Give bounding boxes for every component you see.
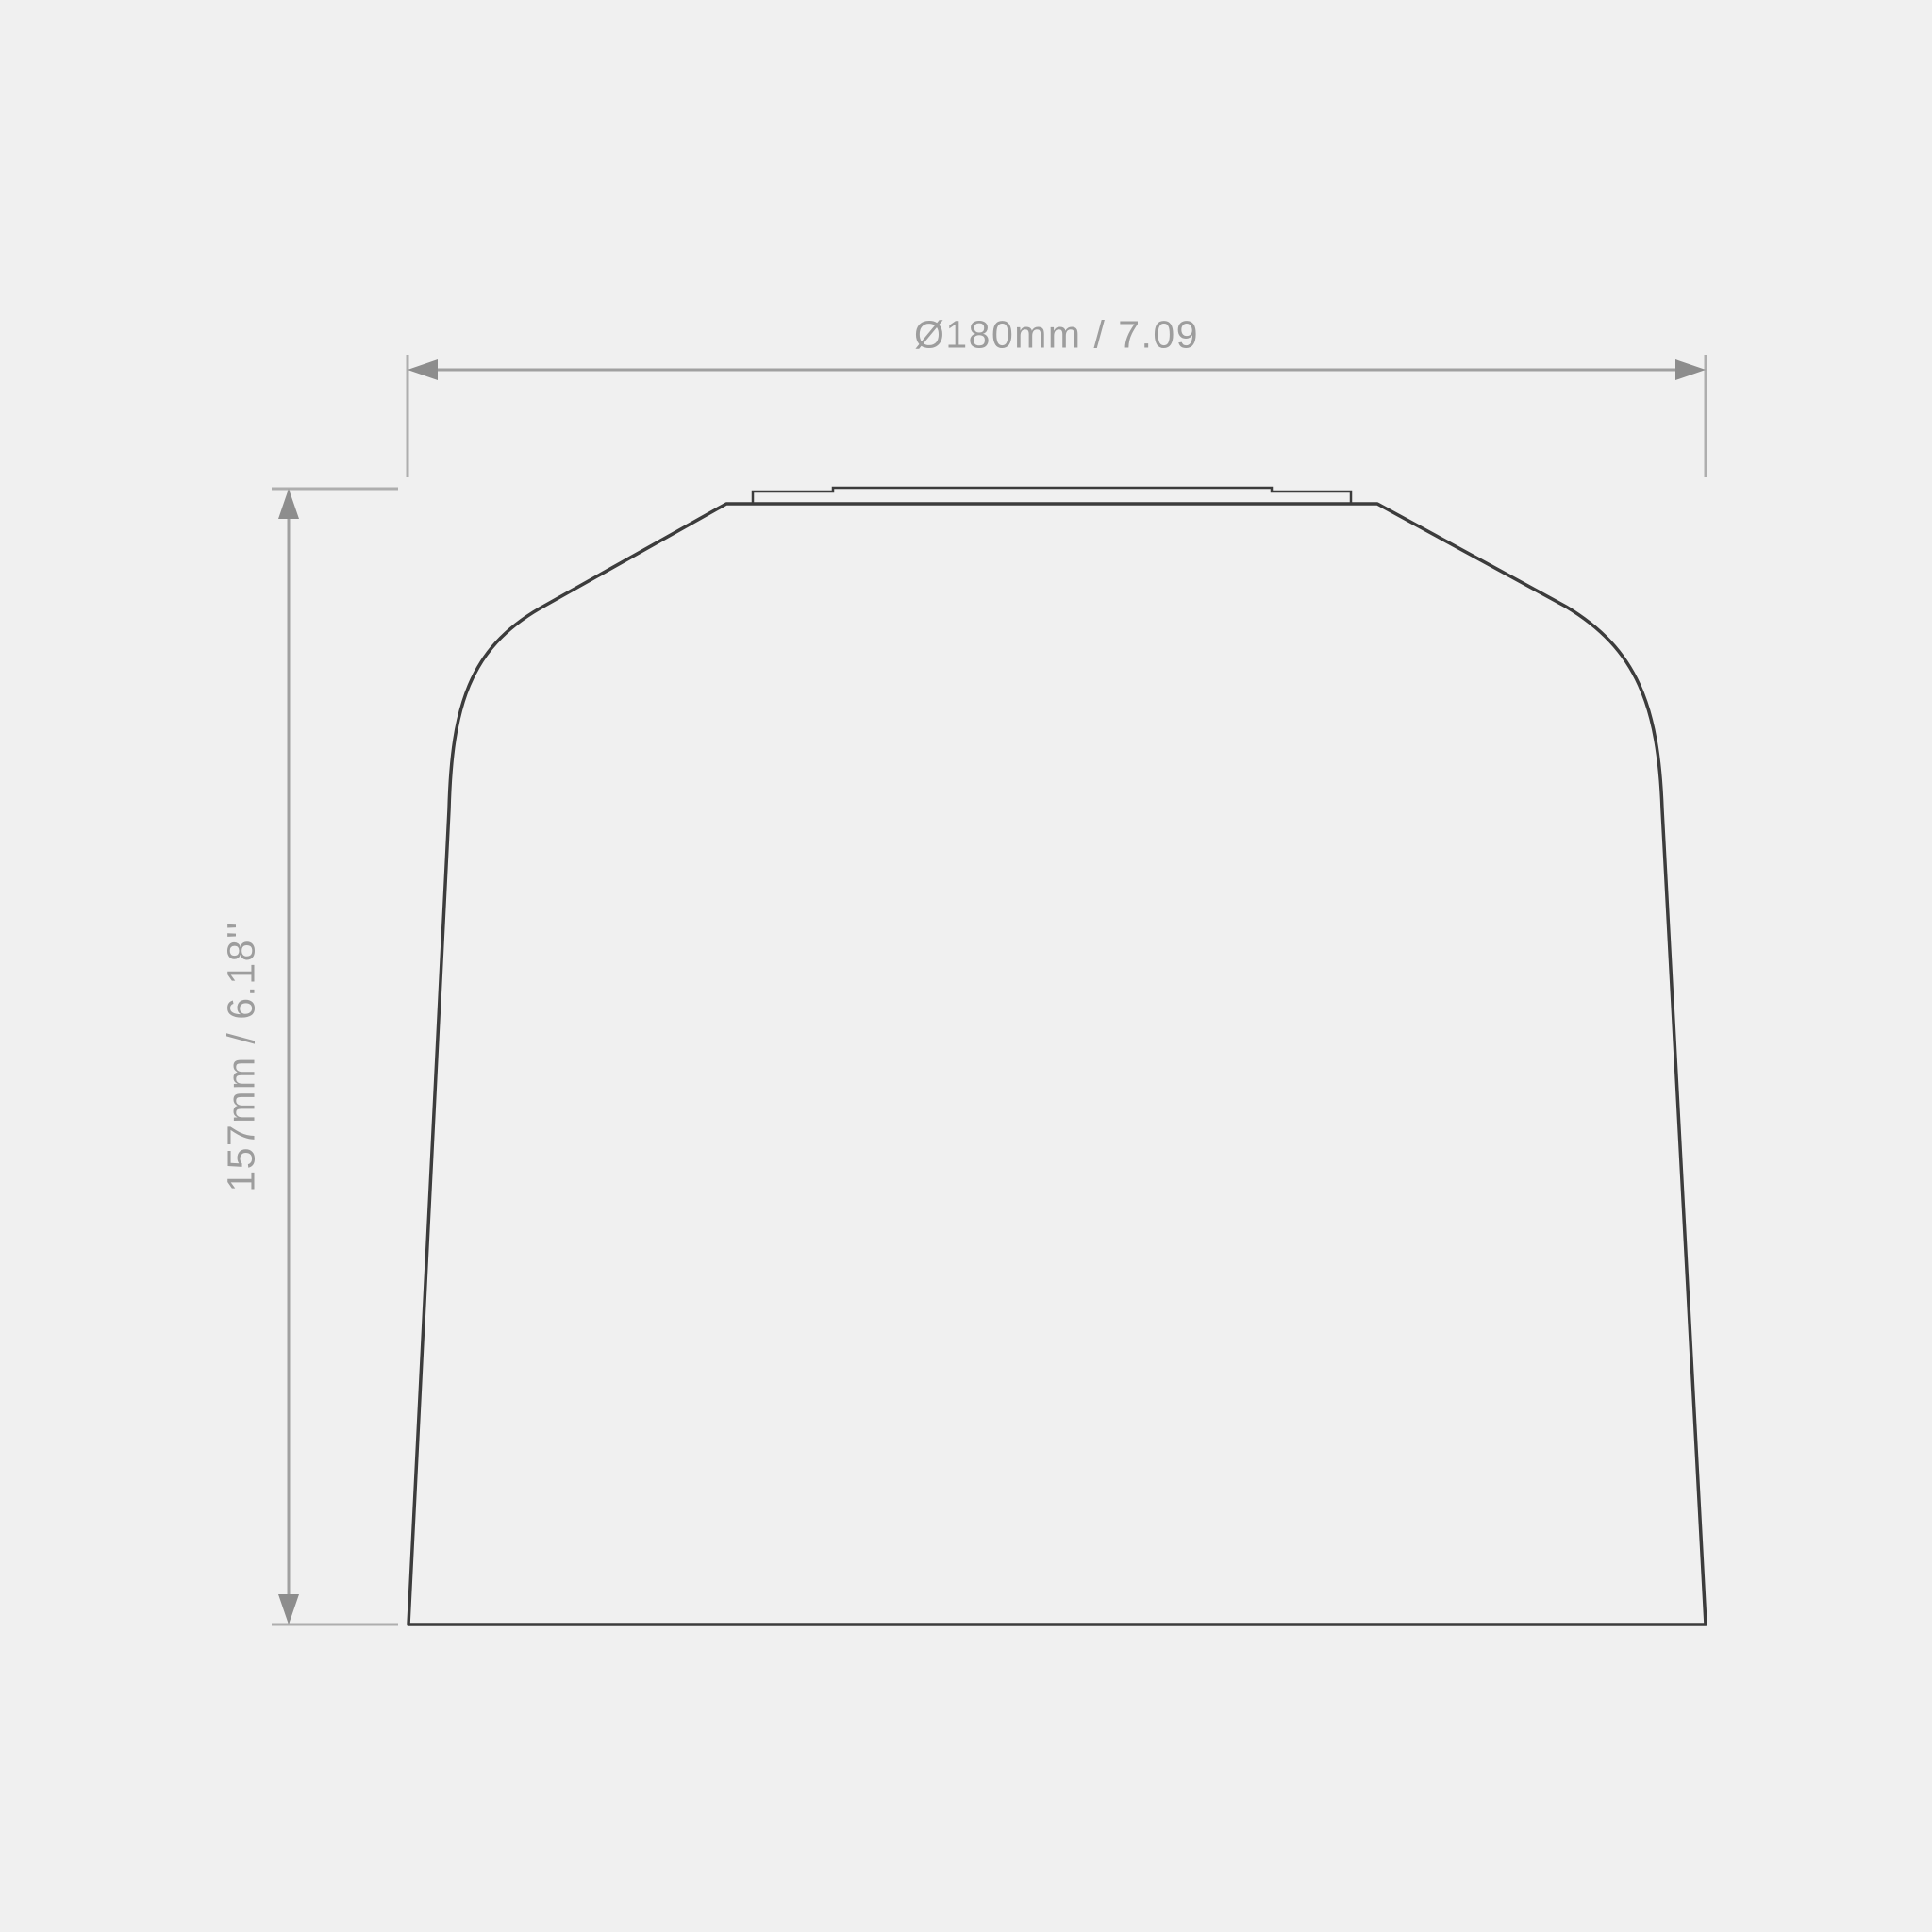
arrow-right-icon bbox=[1675, 359, 1706, 380]
lamp-cap-detail bbox=[753, 488, 1351, 504]
arrow-left-icon bbox=[408, 359, 438, 380]
dimension-diagram-canvas: Ø180mm / 7.09 157mm / 6.18'' bbox=[0, 0, 1932, 1932]
lamp-technical-drawing bbox=[0, 0, 1932, 1932]
height-dimension-label: 157mm / 6.18'' bbox=[220, 921, 264, 1191]
lamp-body-outline bbox=[408, 504, 1706, 1624]
width-dimension bbox=[408, 355, 1706, 477]
arrow-up-icon bbox=[278, 489, 299, 519]
width-dimension-label: Ø180mm / 7.09 bbox=[914, 313, 1199, 358]
height-dimension bbox=[272, 489, 398, 1624]
arrow-down-icon bbox=[278, 1594, 299, 1624]
